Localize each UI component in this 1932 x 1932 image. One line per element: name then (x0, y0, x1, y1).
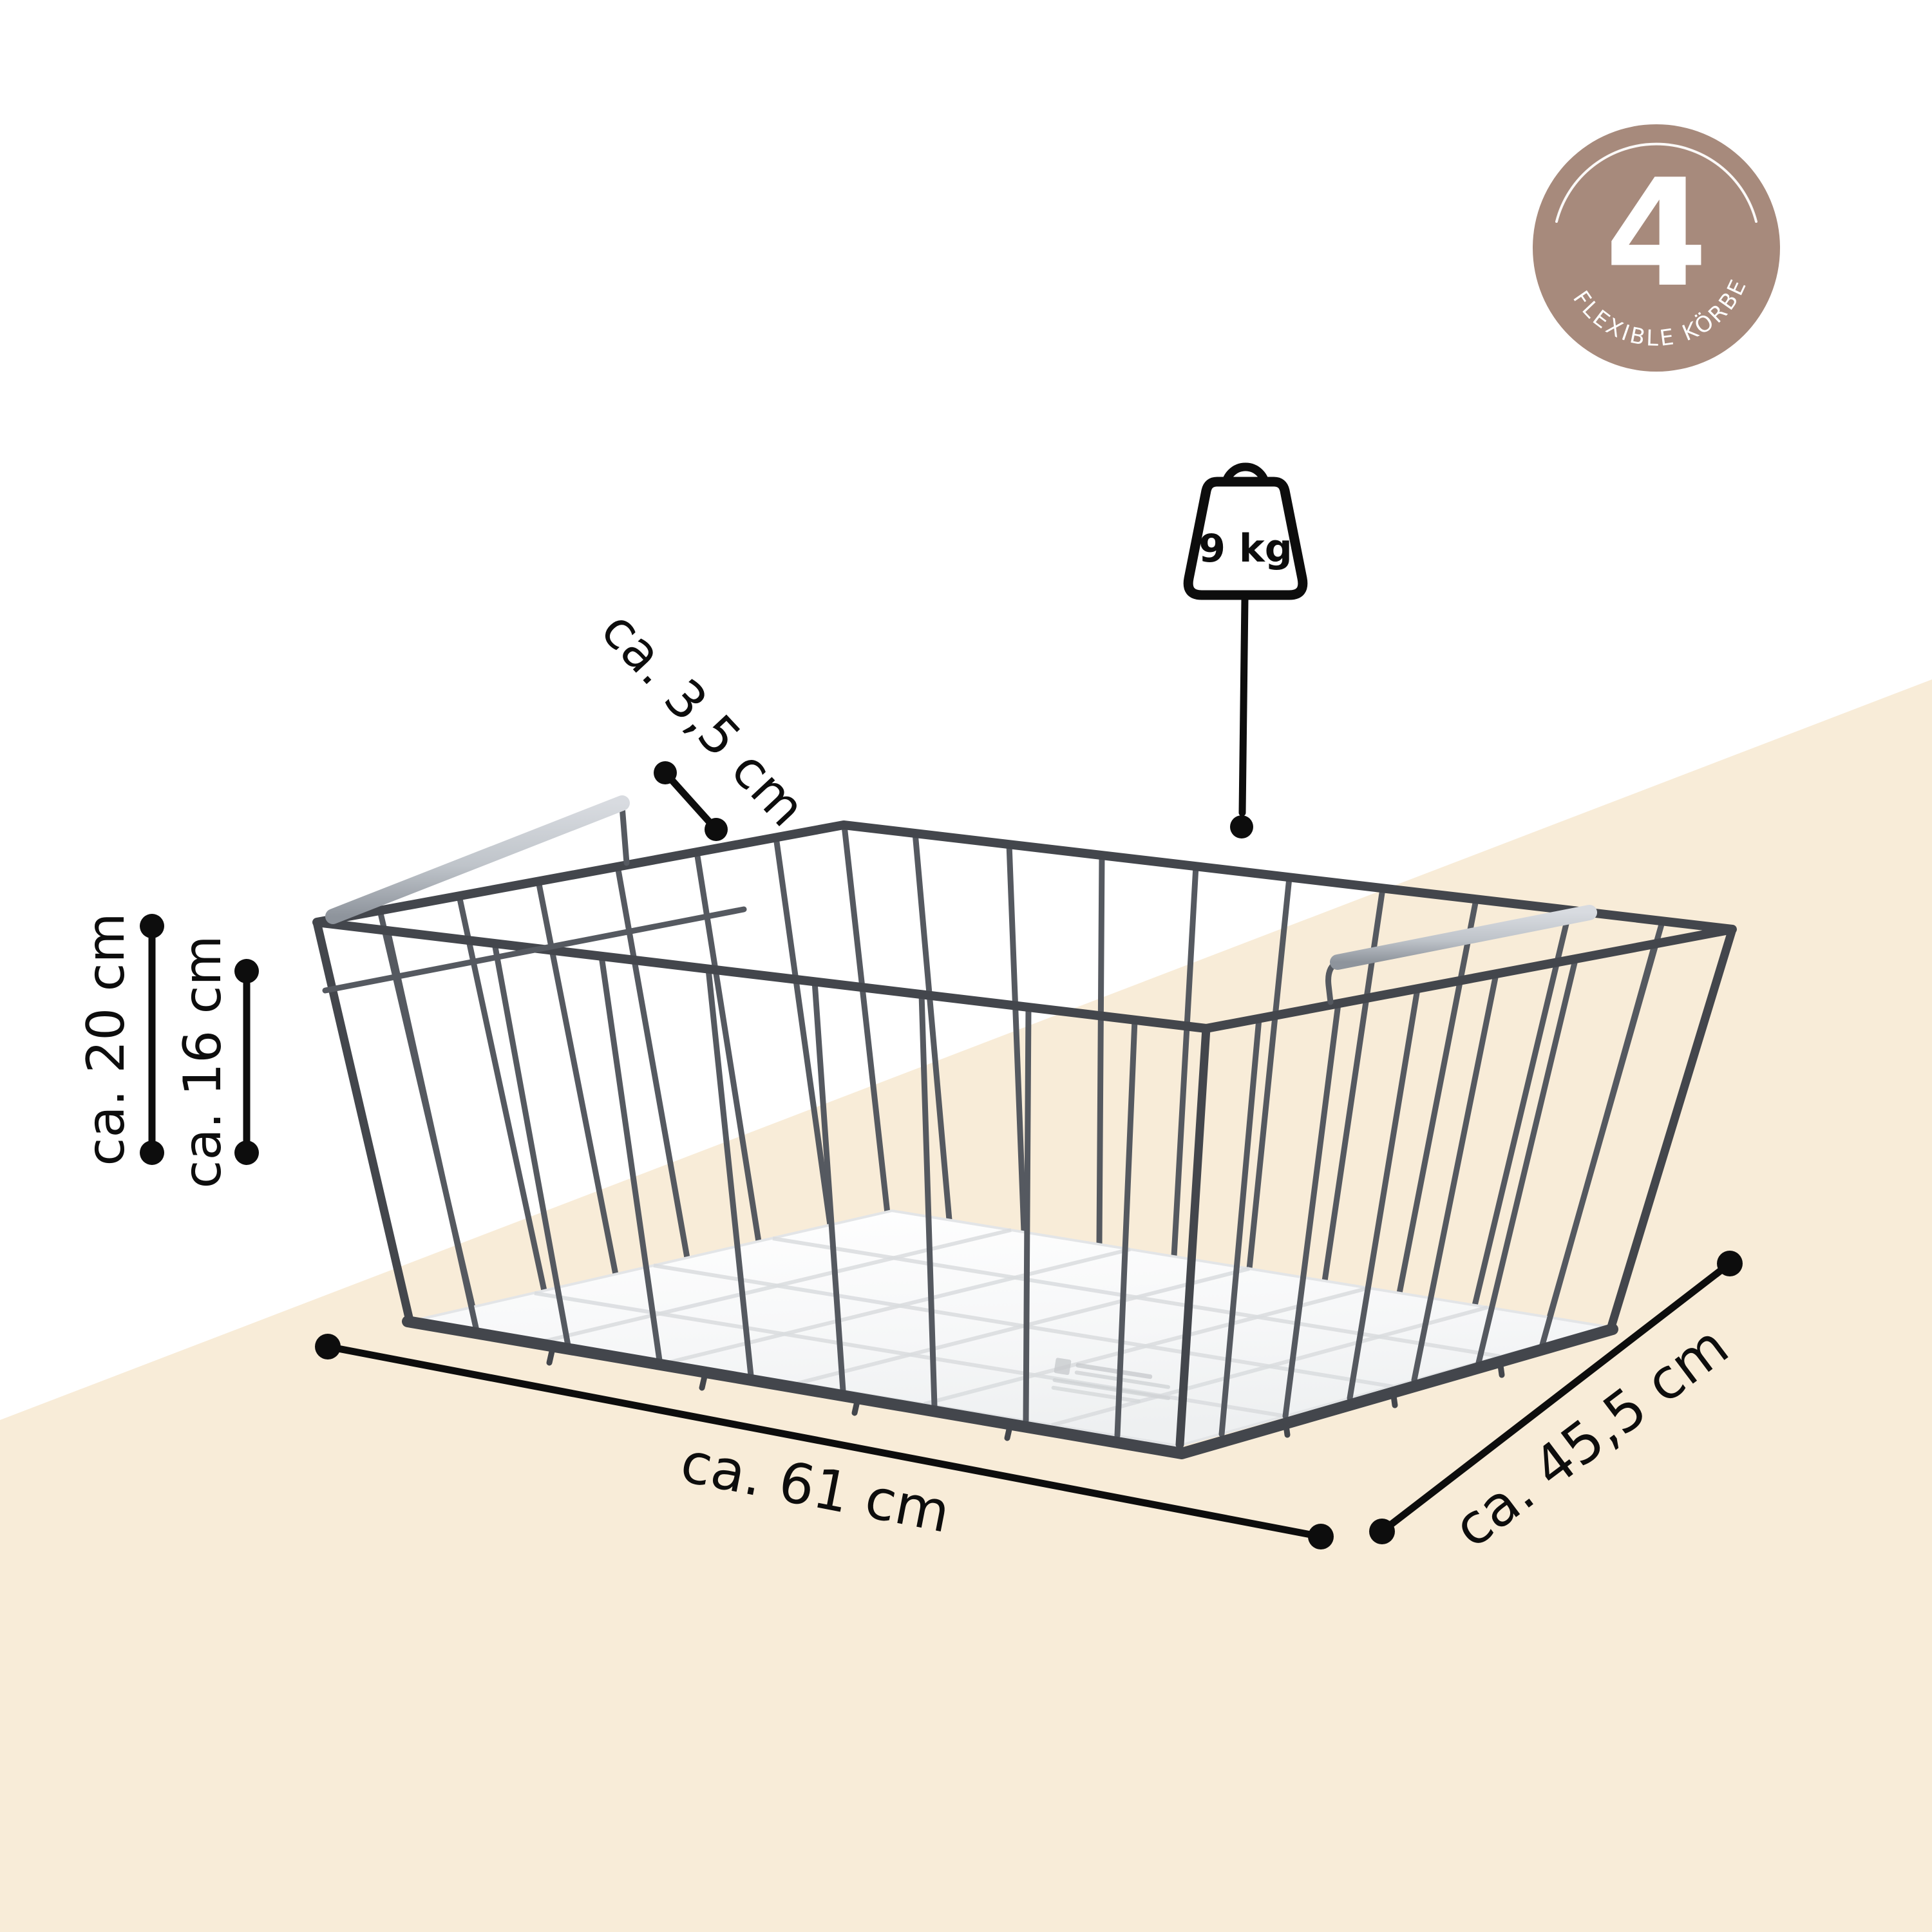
height-inner-label: ca. 16 cm (173, 935, 232, 1188)
dimension-height-outer: ca. 20 cm (76, 913, 164, 1166)
wire (1026, 1007, 1028, 1421)
weight-pointer-dot (1230, 815, 1253, 838)
dimension-dot (1369, 1519, 1395, 1544)
dimension-height-inner: ca. 16 cm (173, 935, 259, 1188)
dimension-dot (1308, 1524, 1334, 1549)
dimension-dot (1717, 1251, 1743, 1276)
dimension-dot (140, 1141, 164, 1165)
product-infographic: ca. 20 cm ca. 16 cm ca. 3,5 cm ca. 61 cm… (0, 0, 1932, 1932)
dimension-dot (234, 1141, 259, 1165)
wire (1099, 855, 1102, 1244)
dimension-dot (654, 761, 677, 784)
dimension-dot (234, 959, 259, 983)
weight-label: 9 kg (1198, 526, 1293, 571)
dimension-dot (705, 818, 728, 841)
dimension-dot (315, 1334, 341, 1359)
count-badge: 4 FLEXIBLE KÖRBE (1533, 124, 1780, 372)
dimension-dot (140, 914, 164, 938)
height-outer-label: ca. 20 cm (76, 913, 136, 1166)
badge-count: 4 (1605, 148, 1708, 320)
